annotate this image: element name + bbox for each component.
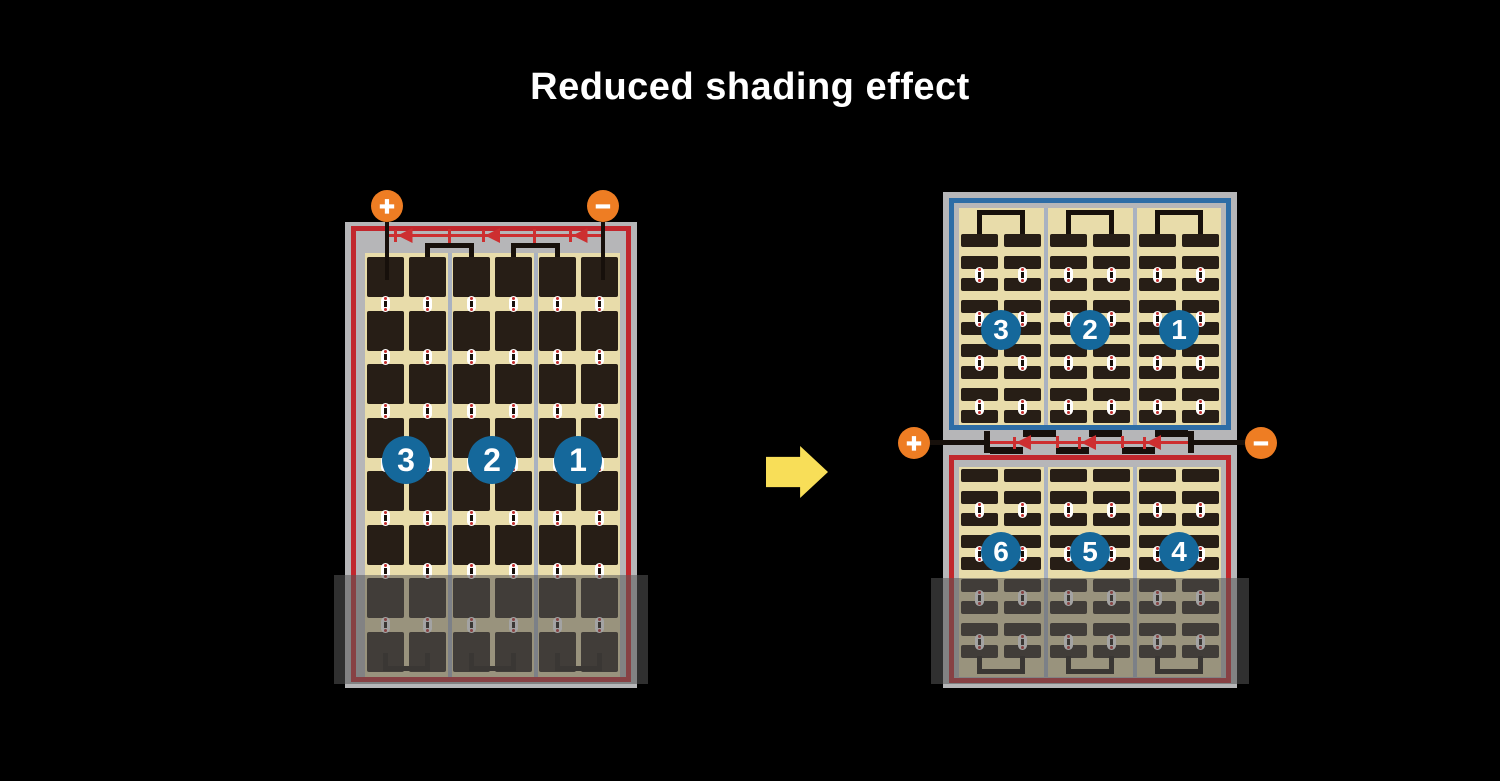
- negative-terminal: −: [1245, 427, 1277, 459]
- string-interconnect-top: [1155, 210, 1203, 234]
- minus-icon: −: [1253, 430, 1268, 456]
- diode-cathode-tick: [1013, 437, 1016, 449]
- string-badge: 3: [382, 436, 430, 484]
- diode-stub: [533, 229, 536, 244]
- diode-cathode-tick: [394, 230, 397, 242]
- plus-icon: +: [906, 430, 921, 456]
- diode-cathode-tick: [569, 230, 572, 242]
- terminal-stem: [1192, 440, 1249, 445]
- string-badge: 1: [554, 436, 602, 484]
- string-interconnect-top: [1066, 210, 1114, 234]
- string-interconnect-top: [977, 210, 1025, 234]
- plus-icon: +: [379, 193, 394, 219]
- junction-bus-bar: [990, 447, 1023, 454]
- diode-stub: [448, 229, 451, 244]
- positive-terminal: +: [898, 427, 930, 459]
- string-badge: 1: [1159, 310, 1199, 350]
- junction-bus-bar: [1056, 447, 1089, 454]
- diode-stub: [1121, 436, 1124, 448]
- diode-cathode-tick: [1143, 437, 1146, 449]
- shading-overlay-right: [931, 578, 1249, 684]
- string-interconnect-top: [425, 243, 474, 257]
- string-badge: 2: [468, 436, 516, 484]
- junction-bus-bar: [1089, 430, 1122, 437]
- string-badge: 2: [1070, 310, 1110, 350]
- junction-bus-bar: [1122, 447, 1155, 454]
- diode-cathode-tick: [1078, 437, 1081, 449]
- minus-icon: −: [595, 193, 610, 219]
- terminal-stem: [601, 218, 605, 280]
- negative-terminal: −: [587, 190, 619, 222]
- string-badge: 6: [981, 532, 1021, 572]
- string-badge: 5: [1070, 532, 1110, 572]
- string-badge: 4: [1159, 532, 1199, 572]
- terminal-stem: [928, 440, 986, 445]
- terminal-stem: [385, 218, 389, 280]
- shading-overlay-left: [334, 575, 648, 684]
- panel-graphics: [0, 0, 1500, 781]
- junction-bus-bar: [1023, 430, 1056, 437]
- string-interconnect-top: [511, 243, 560, 257]
- positive-terminal: +: [371, 190, 403, 222]
- string-badge: 3: [981, 310, 1021, 350]
- diode-stub: [1056, 436, 1059, 448]
- reduced-shading-diagram: Reduced shading effect 3 2 1 3 2 1 6 5 4…: [0, 0, 1500, 781]
- diode-cathode-tick: [482, 230, 485, 242]
